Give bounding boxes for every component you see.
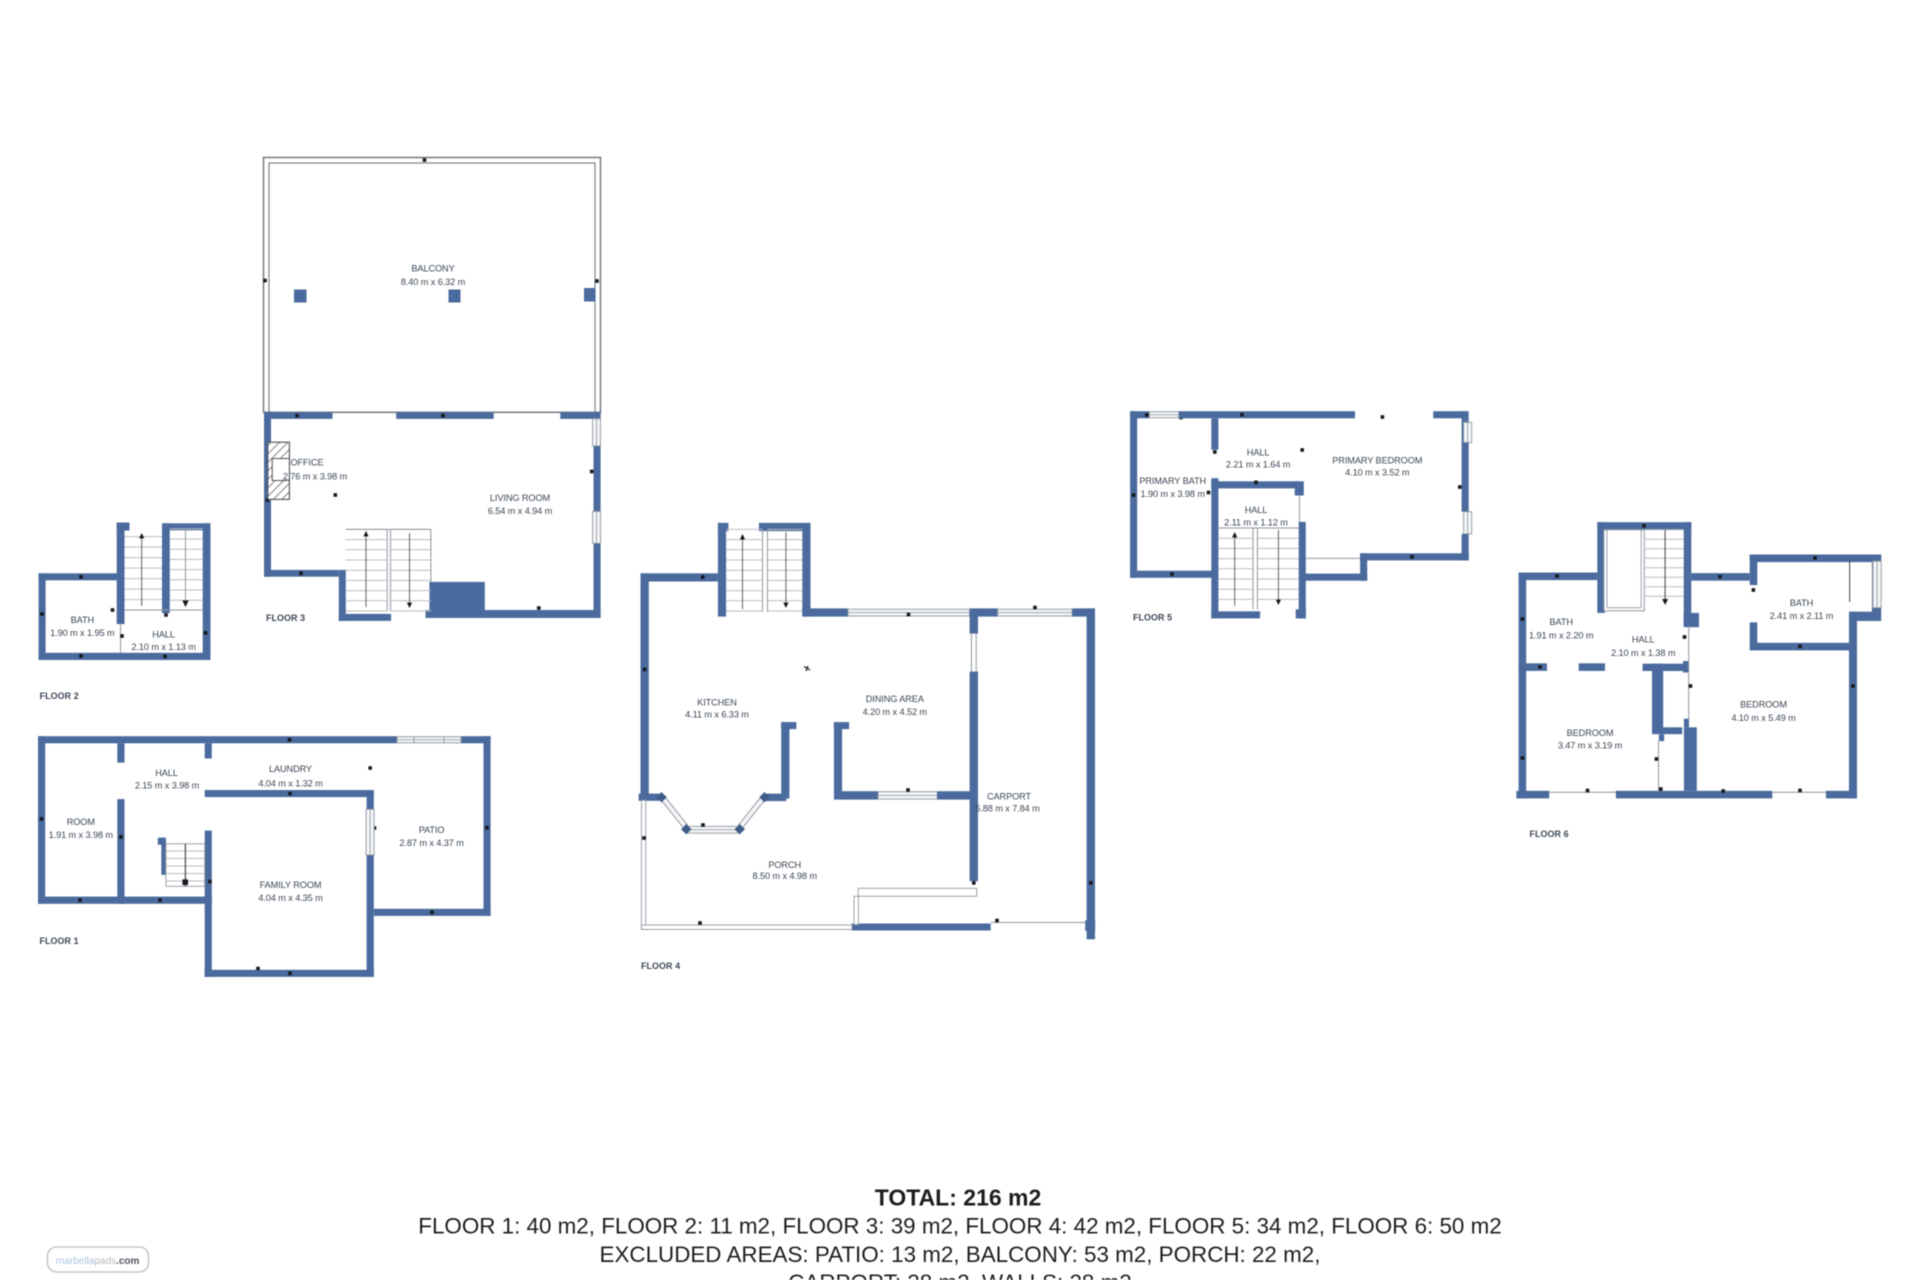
svg-text:8.40 m x 6.32 m: 8.40 m x 6.32 m	[401, 277, 466, 287]
svg-text:TOTAL: 216 m2: TOTAL: 216 m2	[875, 1185, 1042, 1211]
svg-text:BEDROOM: BEDROOM	[1567, 728, 1614, 738]
svg-text:FLOOR 6: FLOOR 6	[1530, 829, 1569, 839]
svg-text:BALCONY: BALCONY	[411, 264, 454, 274]
svg-text:1.90 m x 3.98 m: 1.90 m x 3.98 m	[1141, 489, 1206, 499]
svg-text:2.15 m x 3.98 m: 2.15 m x 3.98 m	[135, 780, 200, 790]
svg-text:4.10 m x 3.52 m: 4.10 m x 3.52 m	[1345, 468, 1410, 478]
svg-text:HALL: HALL	[152, 630, 175, 640]
svg-text:HALL: HALL	[1247, 447, 1270, 457]
svg-text:FLOOR 1: FLOOR 1	[40, 936, 79, 946]
svg-text:FLOOR 5: FLOOR 5	[1133, 613, 1172, 623]
svg-text:2.87 m x 4.37 m: 2.87 m x 4.37 m	[399, 838, 464, 848]
svg-text:BATH: BATH	[71, 615, 94, 625]
svg-text:CARPORT: CARPORT	[987, 791, 1032, 801]
svg-text:EXCLUDED AREAS: PATIO: 13 m2,: EXCLUDED AREAS: PATIO: 13 m2, BALCONY: 5…	[600, 1242, 1321, 1267]
svg-text:OFFICE: OFFICE	[290, 458, 323, 468]
svg-text:5.88 m x 7.84 m: 5.88 m x 7.84 m	[975, 804, 1040, 814]
svg-text:4.11 m x 6.33 m: 4.11 m x 6.33 m	[685, 710, 749, 720]
svg-text:BATH: BATH	[1790, 598, 1813, 608]
svg-text:1.91 m x 3.98 m: 1.91 m x 3.98 m	[49, 830, 114, 840]
svg-text:DINING AREA: DINING AREA	[866, 694, 925, 704]
svg-text:PORCH: PORCH	[768, 860, 801, 870]
svg-text:FLOOR 2: FLOOR 2	[40, 691, 79, 701]
svg-text:LAUNDRY: LAUNDRY	[269, 764, 312, 774]
svg-text:PRIMARY BEDROOM: PRIMARY BEDROOM	[1332, 455, 1422, 465]
svg-text:FLOOR 1: 40 m2, FLOOR 2: 11 m2: FLOOR 1: 40 m2, FLOOR 2: 11 m2, FLOOR 3:…	[418, 1214, 1501, 1239]
svg-text:8.50 m x 4.98 m: 8.50 m x 4.98 m	[753, 871, 818, 881]
svg-text:PRIMARY BATH: PRIMARY BATH	[1139, 476, 1206, 486]
svg-text:HALL: HALL	[1632, 635, 1655, 645]
svg-text:CARPORT: 28 m2, WALLS: 28 m2: CARPORT: 28 m2, WALLS: 28 m2	[788, 1270, 1131, 1280]
svg-text:KITCHEN: KITCHEN	[697, 698, 737, 708]
svg-text:PATIO: PATIO	[419, 825, 445, 835]
svg-text:4.04 m x 4.35 m: 4.04 m x 4.35 m	[258, 893, 323, 903]
svg-text:FLOOR 4: FLOOR 4	[641, 961, 680, 971]
svg-text:BEDROOM: BEDROOM	[1740, 700, 1787, 710]
svg-text:HALL: HALL	[155, 768, 178, 778]
svg-text:2.10 m x 1.13 m: 2.10 m x 1.13 m	[131, 642, 196, 652]
svg-text:2.11 m x 1.12 m: 2.11 m x 1.12 m	[1224, 517, 1288, 527]
svg-text:LIVING ROOM: LIVING ROOM	[490, 493, 550, 503]
svg-text:2.41 m x 2.11 m: 2.41 m x 2.11 m	[1770, 611, 1834, 621]
svg-text:4.20 m x 4.52 m: 4.20 m x 4.52 m	[863, 707, 928, 717]
svg-text:ROOM: ROOM	[67, 817, 95, 827]
svg-text:marbellapads.com: marbellapads.com	[56, 1256, 139, 1267]
svg-text:1.91 m x 2.20 m: 1.91 m x 2.20 m	[1529, 630, 1594, 640]
svg-text:2.76 m x 3.98 m: 2.76 m x 3.98 m	[283, 471, 348, 481]
svg-text:3.47 m x 3.19 m: 3.47 m x 3.19 m	[1558, 741, 1623, 751]
svg-text:4.04 m x 1.32 m: 4.04 m x 1.32 m	[258, 778, 323, 788]
svg-text:4.10 m x 5.49 m: 4.10 m x 5.49 m	[1731, 713, 1796, 723]
svg-text:2.21 m x 1.64 m: 2.21 m x 1.64 m	[1226, 460, 1291, 470]
svg-text:FLOOR 3: FLOOR 3	[266, 613, 305, 623]
svg-text:HALL: HALL	[1245, 505, 1268, 515]
svg-text:FAMILY ROOM: FAMILY ROOM	[260, 880, 322, 890]
svg-text:6.54 m x 4.94 m: 6.54 m x 4.94 m	[488, 506, 553, 516]
svg-text:2.10 m x 1.38 m: 2.10 m x 1.38 m	[1611, 648, 1676, 658]
svg-text:1.90 m x 1.95 m: 1.90 m x 1.95 m	[50, 628, 115, 638]
svg-text:BATH: BATH	[1549, 617, 1572, 627]
